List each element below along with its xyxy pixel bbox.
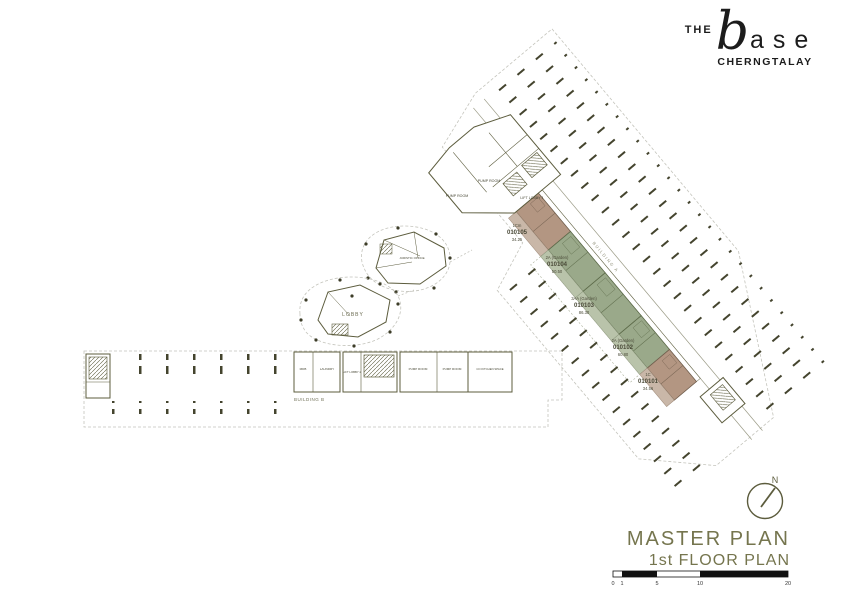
clubhouse: JURISTIC OFFICE LOBBY [299, 226, 472, 348]
svg-text:86.30: 86.30 [579, 310, 590, 315]
svg-text:010101: 010101 [638, 379, 659, 385]
master-plan-page: BUILDING A [0, 0, 851, 602]
scale-tick: 1 [620, 581, 623, 587]
rooms-mdb-laundry: MDB LAUNDRY [294, 352, 340, 392]
svg-text:1C: 1C [645, 372, 650, 377]
svg-text:010104: 010104 [547, 262, 568, 268]
svg-text:50.50: 50.50 [552, 269, 563, 274]
brand-logo: THE b ase CHERNGTALAY [671, 12, 831, 68]
plan-subtitle: 1st FLOOR PLAN [649, 552, 790, 569]
room-label-liftlobby-a: LIFT LOBBY 1 [520, 196, 543, 200]
north-compass: N [748, 475, 783, 519]
svg-text:010105: 010105 [507, 230, 528, 236]
scale-tick: 10 [697, 581, 703, 587]
svg-text:60.80: 60.80 [618, 352, 629, 357]
laundry-label: LAUNDRY [320, 367, 334, 371]
svg-text:3AA (Garden): 3AA (Garden) [571, 296, 597, 301]
scale-tick: 20 [785, 581, 791, 587]
stair-juristic [380, 244, 392, 254]
svg-text:34.25: 34.25 [512, 237, 523, 242]
building-b: MDB LAUNDRY LIFT LOBBY 2 PUMP ROOM PUMP … [84, 351, 562, 427]
compass-needle-icon [761, 488, 775, 507]
liftlobby-b-label: LIFT LOBBY 2 [343, 370, 362, 374]
parking-b-top [118, 354, 290, 378]
juristic-office-label: JURISTIC OFFICE [399, 256, 424, 260]
svg-text:010103: 010103 [574, 303, 595, 309]
title-block: N MASTER PLAN 1st FLOOR PLAN 0 1 5 10 20 [611, 475, 791, 587]
building-a: BUILDING A [391, 29, 837, 503]
stair-b-left [86, 354, 110, 398]
logo-location: CHERNGTALAY [671, 56, 831, 68]
svg-text:010102: 010102 [613, 345, 634, 351]
pump-b1-label: PUMP ROOM [409, 367, 428, 371]
scale-bar: 0 1 5 10 20 [611, 571, 791, 587]
lobby-label: LOBBY [342, 312, 364, 318]
co-kitchen-label: CO KITCHEN SPACE [476, 367, 503, 371]
scale-tick: 0 [611, 581, 614, 587]
scale-tick: 5 [655, 581, 658, 587]
path-link [398, 290, 414, 296]
svg-text:2A (Garden): 2A (Garden) [612, 338, 635, 343]
floor-plan-canvas: BUILDING A [0, 0, 851, 602]
svg-text:2A (Garden): 2A (Garden) [546, 255, 569, 260]
svg-text:34.56: 34.56 [643, 386, 654, 391]
room-label-pump-a1: PUMP ROOM [478, 179, 501, 183]
logo-the: THE [685, 24, 713, 36]
building-b-label: BUILDING B [294, 397, 325, 402]
stair-lobby [332, 324, 348, 335]
brand-logo-row: THE b ase [671, 12, 831, 55]
path-link [450, 250, 472, 262]
room-co-kitchen: CO KITCHEN SPACE [468, 352, 512, 392]
compass-n-label: N [772, 475, 779, 485]
room-label-pump-a2: PUMP ROOM [446, 194, 469, 198]
logo-base-rest: ase [750, 26, 817, 55]
pump-b2-label: PUMP ROOM [443, 367, 462, 371]
logo-base-initial: b [716, 12, 749, 53]
plan-title: MASTER PLAN [627, 528, 790, 550]
rooms-lift-stair-b: LIFT LOBBY 2 [343, 352, 397, 392]
svg-text:1Cm: 1Cm [513, 223, 522, 228]
mdb-label: MDB [300, 367, 307, 371]
parking-b-bottom [90, 401, 290, 414]
rooms-pump-b: PUMP ROOM PUMP ROOM [400, 352, 468, 392]
